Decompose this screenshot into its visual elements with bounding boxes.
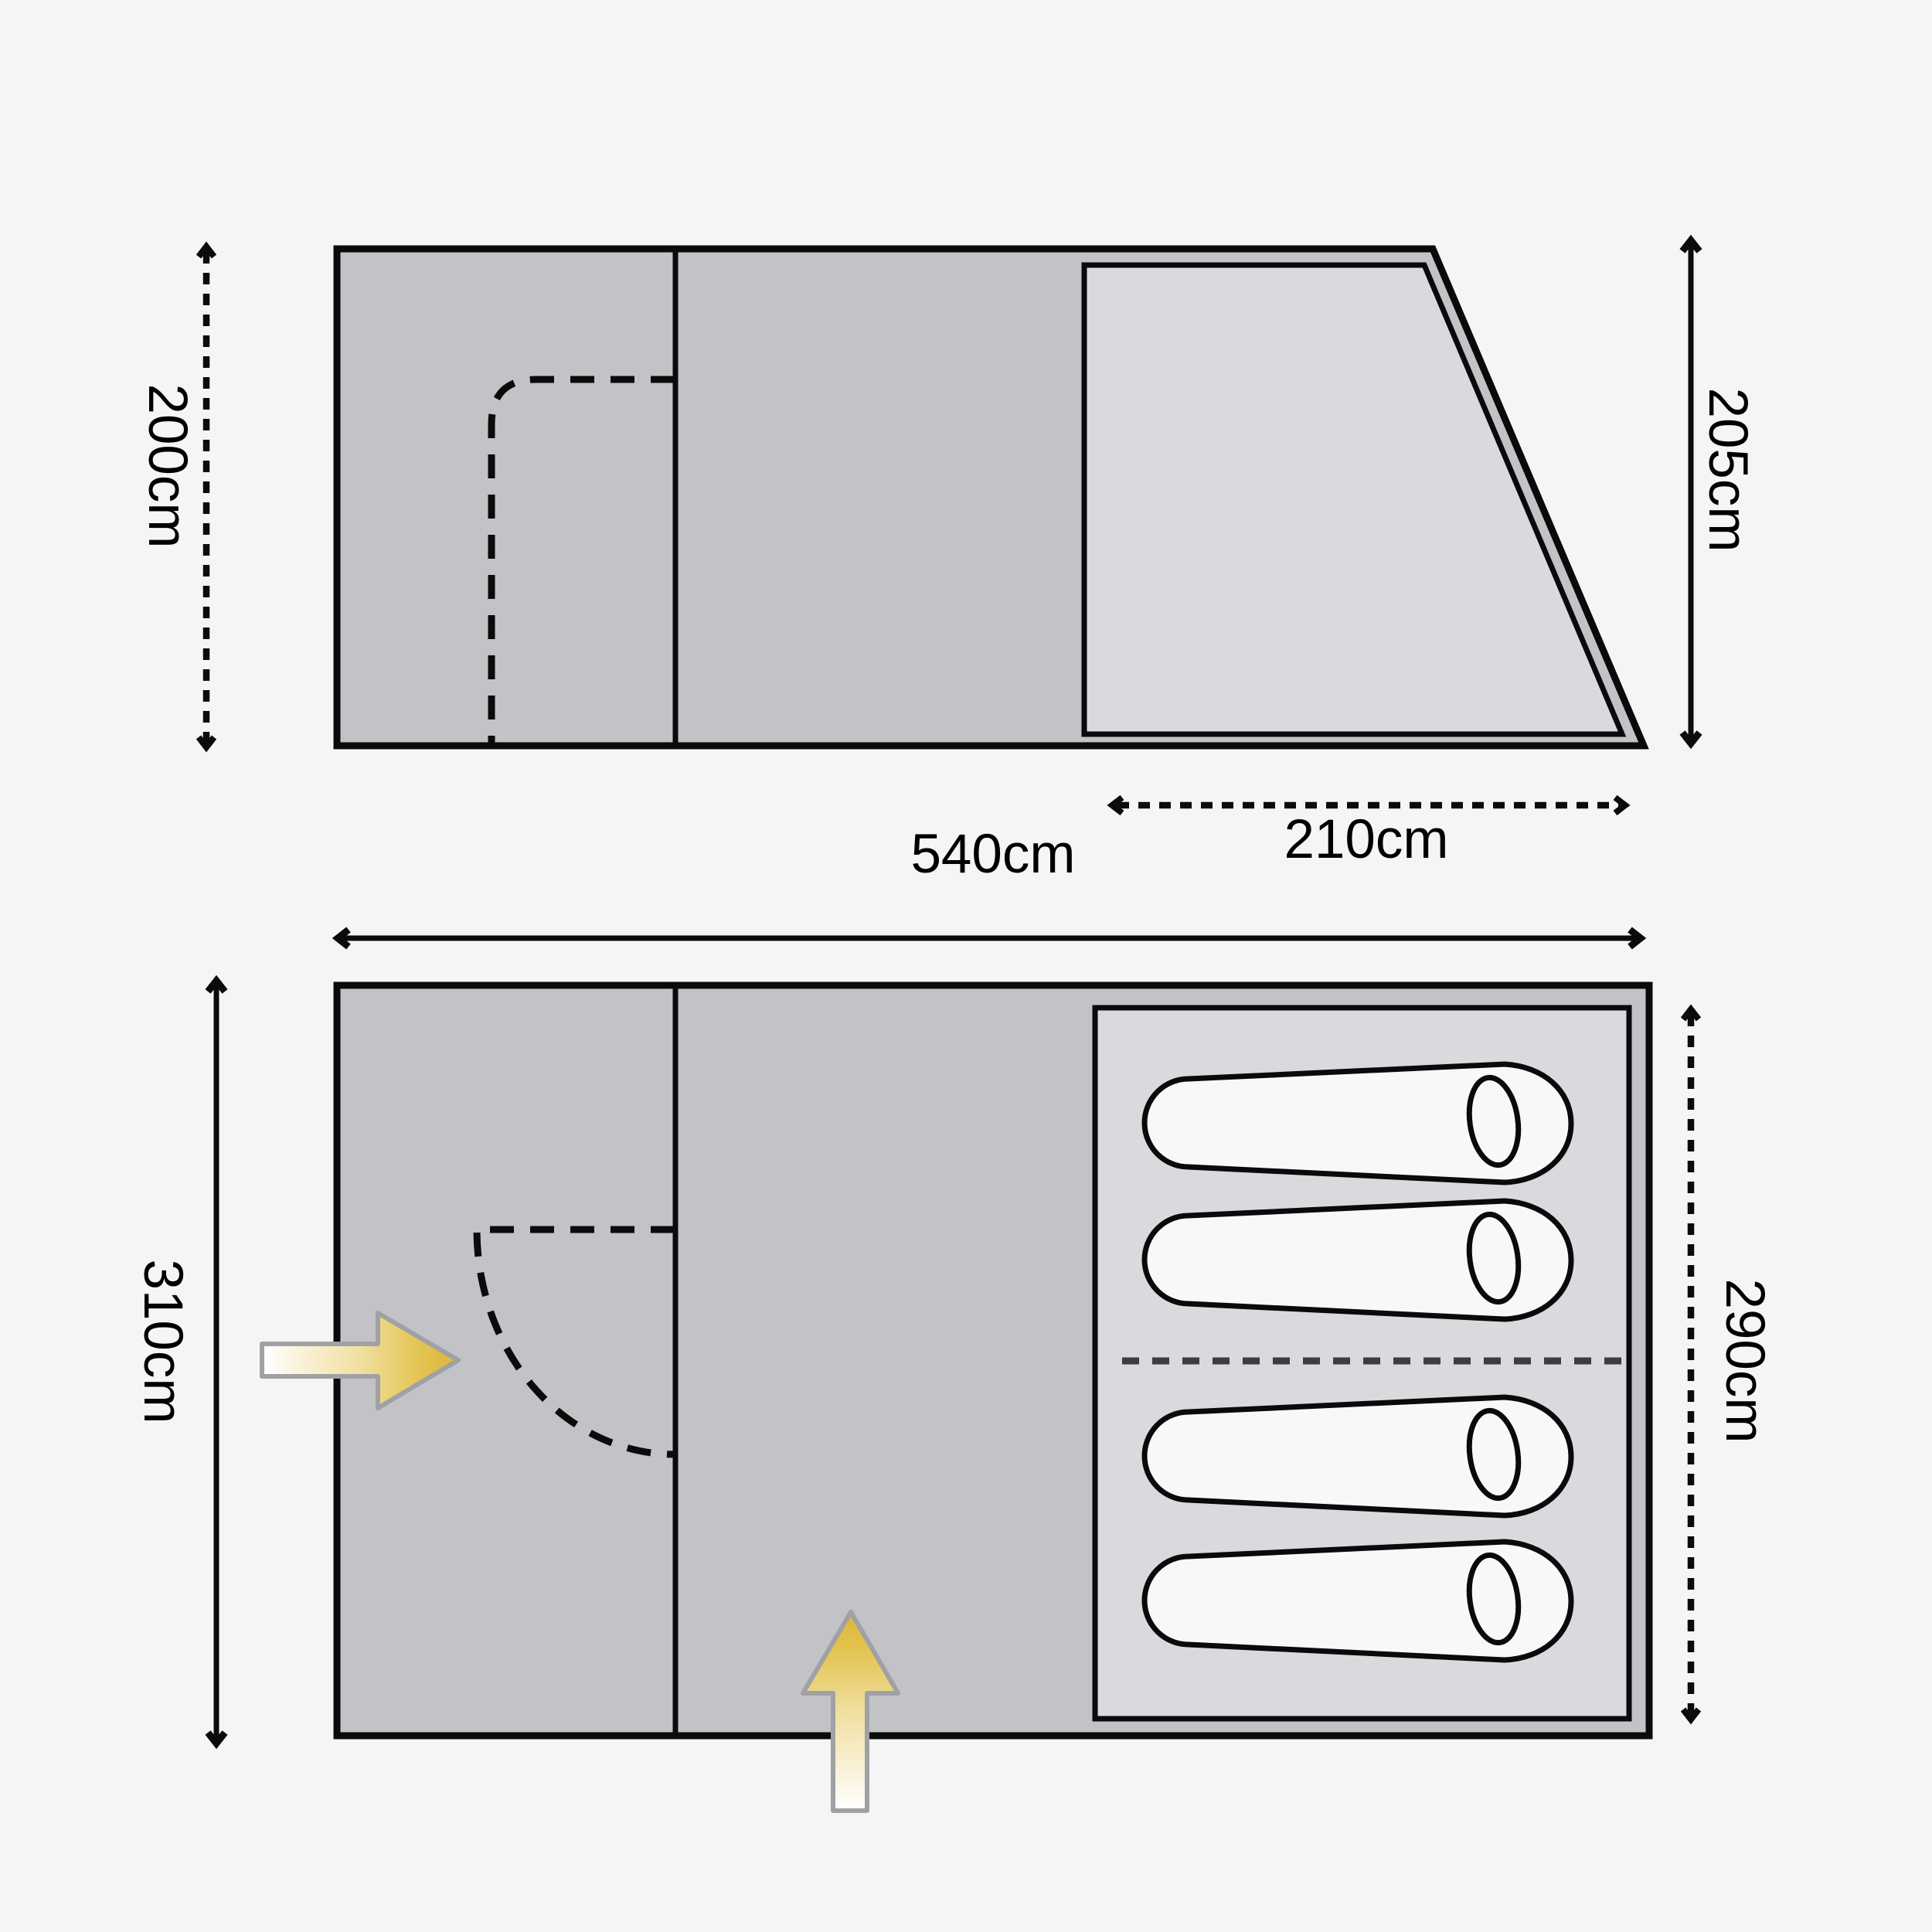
svg-text:540cm: 540cm bbox=[910, 824, 1075, 885]
svg-text:310cm: 310cm bbox=[132, 1259, 193, 1423]
svg-text:200cm: 200cm bbox=[137, 383, 198, 548]
svg-text:210cm: 210cm bbox=[1284, 809, 1448, 870]
svg-text:290cm: 290cm bbox=[1714, 1278, 1775, 1443]
svg-text:205cm: 205cm bbox=[1697, 387, 1758, 552]
